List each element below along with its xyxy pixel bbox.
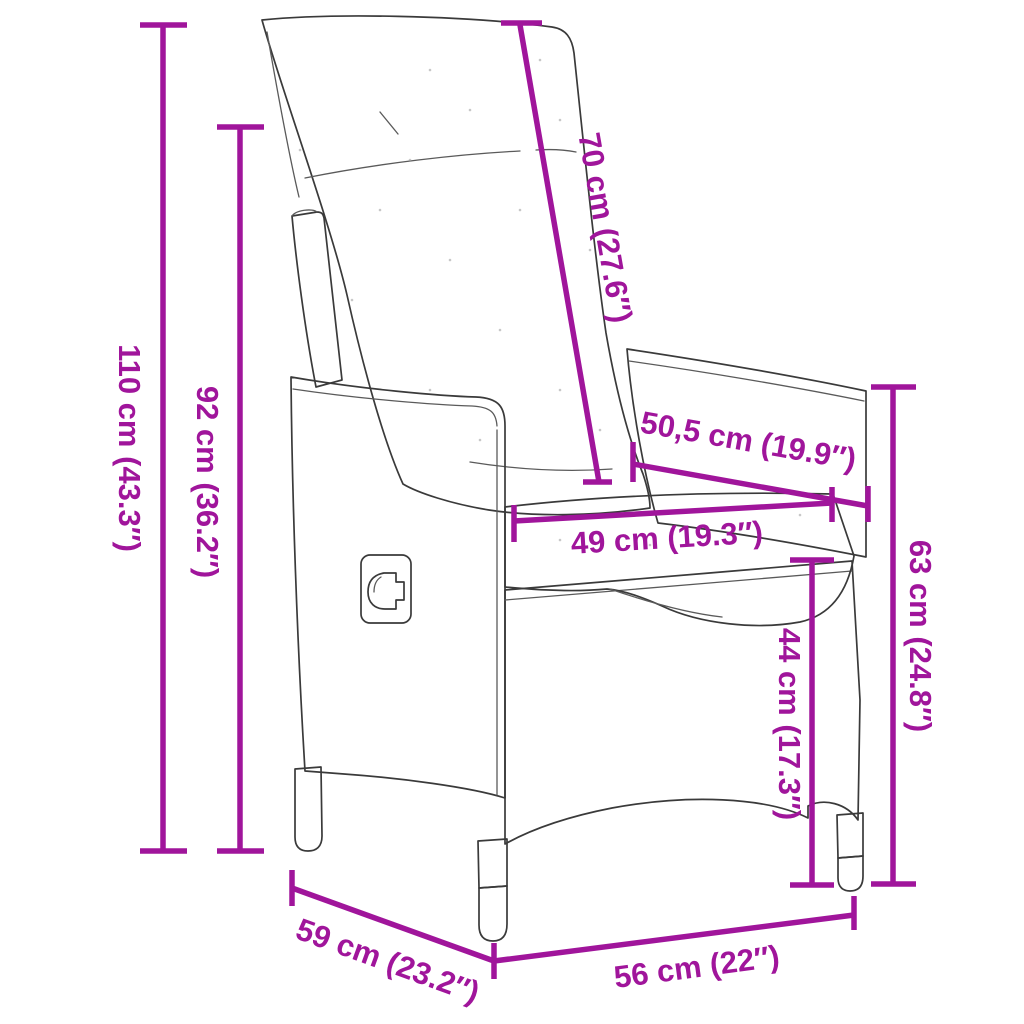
dimension-label-70: 70 cm (27.6″): [571, 130, 639, 325]
backrest-cushion-crease-1: [305, 151, 520, 178]
dimension-label-110: 110 cm (43.3″): [112, 344, 147, 552]
dimension-annotations: 110 cm (43.3″) 92 cm (36.2″) 70 cm (27.6…: [112, 23, 938, 1010]
dimension-armrest-height-63: 63 cm (24.8″): [871, 387, 938, 884]
back-left-leg: [295, 767, 322, 851]
dimension-depth-59: 59 cm (23.2″): [291, 870, 494, 1010]
left-armrest-panel: [291, 377, 505, 798]
dimension-label-63: 63 cm (24.8″): [903, 540, 938, 732]
armrest-top-rim: [293, 389, 497, 426]
front-right-leg: [837, 813, 863, 891]
dimension-width-56: 56 cm (22″): [494, 896, 854, 995]
dimension-seat-width-49: 49 cm (19.3″): [514, 487, 832, 561]
dimension-label-92: 92 cm (36.2″): [190, 386, 225, 578]
front-left-leg: [478, 839, 507, 941]
recline-knob: [361, 555, 411, 623]
diagram-canvas: 110 cm (43.3″) 92 cm (36.2″) 70 cm (27.6…: [0, 0, 1024, 1024]
dimension-backrest-length-70: 70 cm (27.6″): [501, 23, 639, 482]
backrest-cushion-crease-3: [380, 112, 398, 134]
dimension-label-49: 49 cm (19.3″): [570, 515, 764, 561]
dimension-label-44: 44 cm (17.3″): [772, 628, 807, 820]
backrest-cushion-left-seam: [267, 32, 299, 197]
dimension-seat-height-44: 44 cm (17.3″): [772, 560, 834, 885]
backrest-cushion-crease-4: [470, 462, 612, 470]
right-back-panel-rim: [629, 361, 864, 401]
dimension-label-50-5: 50,5 cm (19.9″): [638, 405, 859, 477]
cushion-speckles: [299, 59, 602, 442]
dimension-back-height-92: 92 cm (36.2″): [190, 127, 264, 851]
dimension-label-56: 56 cm (22″): [612, 938, 782, 994]
dimension-total-height-110: 110 cm (43.3″): [112, 25, 187, 851]
dimension-label-59: 59 cm (23.2″): [291, 911, 484, 1010]
product-dimension-diagram: 110 cm (43.3″) 92 cm (36.2″) 70 cm (27.6…: [0, 0, 1024, 1024]
backrest-frame-post: [292, 212, 342, 387]
